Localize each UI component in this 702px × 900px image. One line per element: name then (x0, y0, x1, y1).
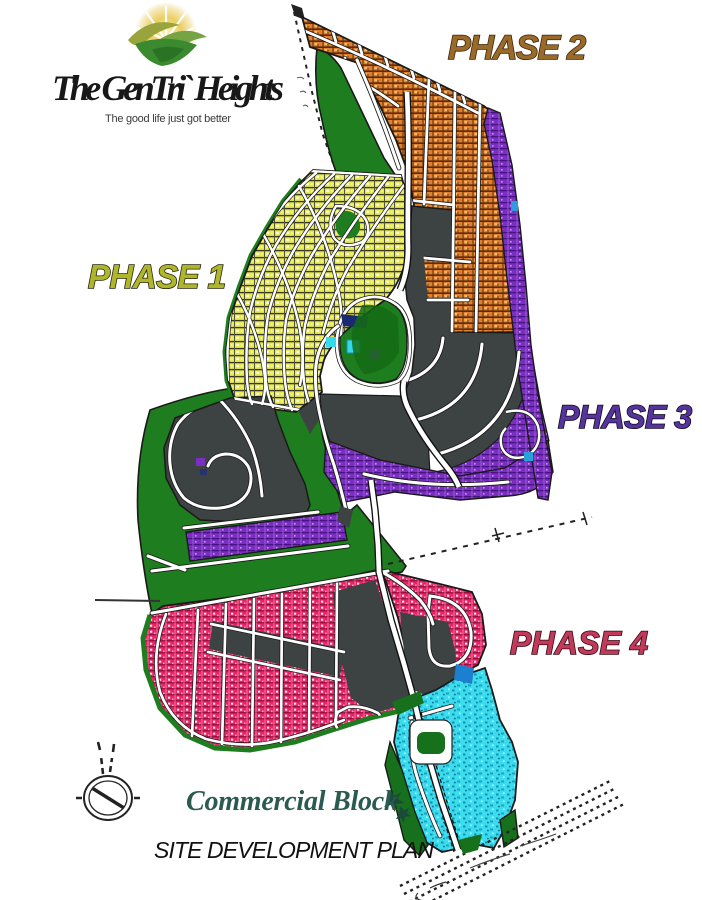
svg-text:The good life just got better: The good life just got better (105, 113, 231, 125)
svg-text:SITE DEVELOPMENT PLAN: SITE DEVELOPMENT PLAN (154, 837, 434, 863)
svg-text:PHASE 2: PHASE 2 (448, 29, 586, 67)
svg-text:PHASE 1: PHASE 1 (88, 258, 226, 295)
svg-text:PHASE 3: PHASE 3 (558, 399, 692, 435)
svg-text:PHASE 4: PHASE 4 (510, 625, 648, 661)
svg-text:Commercial Block: Commercial Block (186, 786, 398, 817)
svg-text:The GenTri` Heights: The GenTri` Heights (52, 68, 284, 108)
